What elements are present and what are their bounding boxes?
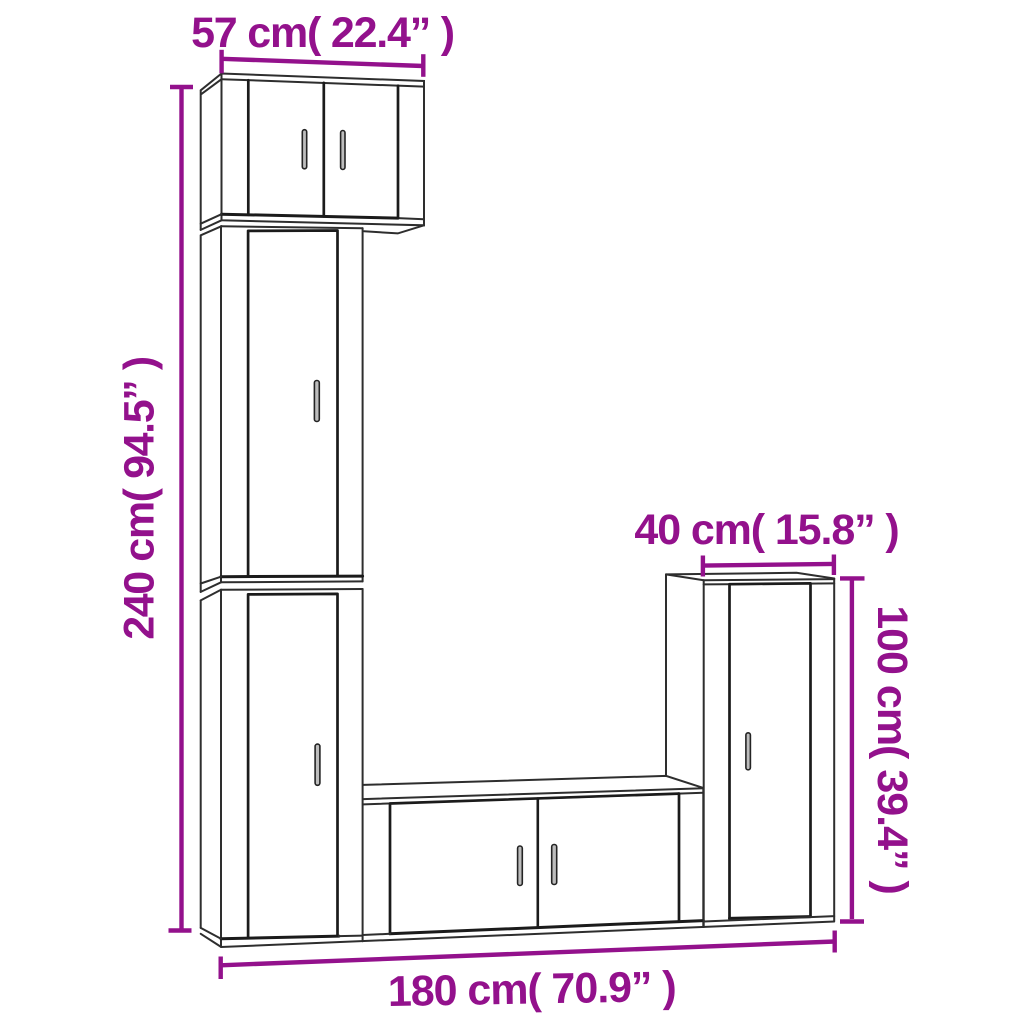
svg-text:180 cm( 70.9” ): 180 cm( 70.9” )	[387, 963, 676, 1016]
svg-text:240 cm( 94.5” ): 240 cm( 94.5” )	[116, 357, 164, 640]
svg-text:57 cm( 22.4” ): 57 cm( 22.4” )	[191, 9, 454, 57]
svg-text:40 cm( 15.8” ): 40 cm( 15.8” )	[634, 506, 898, 554]
svg-text:100 cm( 39.4” ): 100 cm( 39.4” )	[868, 605, 916, 894]
